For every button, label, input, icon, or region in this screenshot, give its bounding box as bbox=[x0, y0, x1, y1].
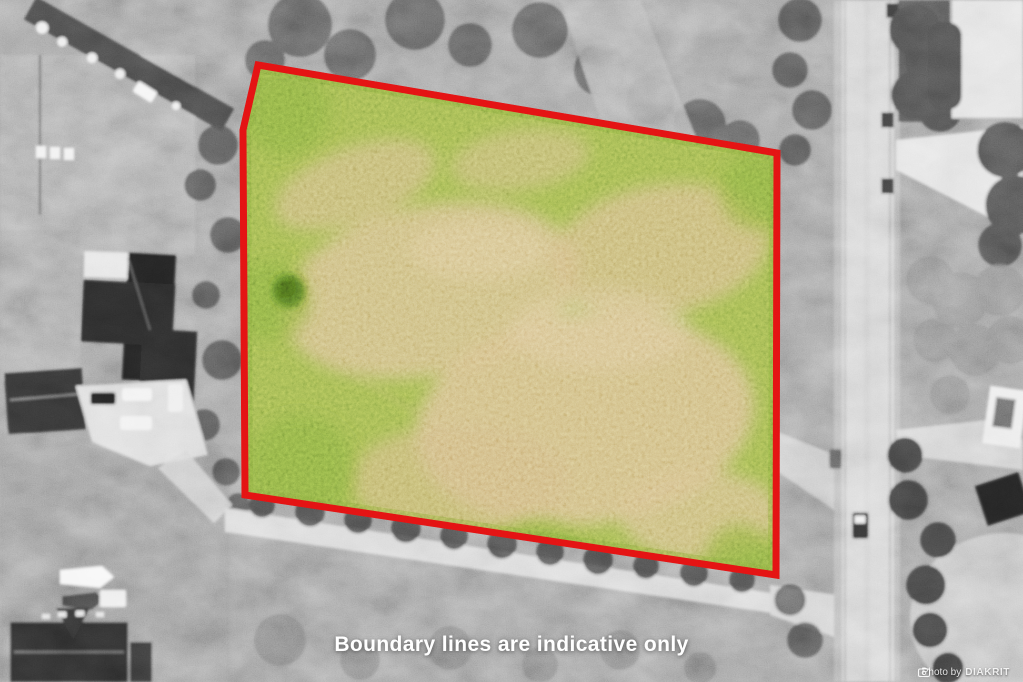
photo-credit-watermark: Photo by DIAKRIT bbox=[918, 667, 1010, 678]
aerial-photo-canvas bbox=[0, 0, 1023, 682]
photo-grain-texture bbox=[0, 0, 1023, 682]
disclaimer-text: Boundary lines are indicative only bbox=[0, 633, 1023, 657]
aerial-photo: Boundary lines are indicative only Photo… bbox=[0, 0, 1023, 682]
photo-credit-brand: DIAKRIT bbox=[965, 667, 1010, 678]
